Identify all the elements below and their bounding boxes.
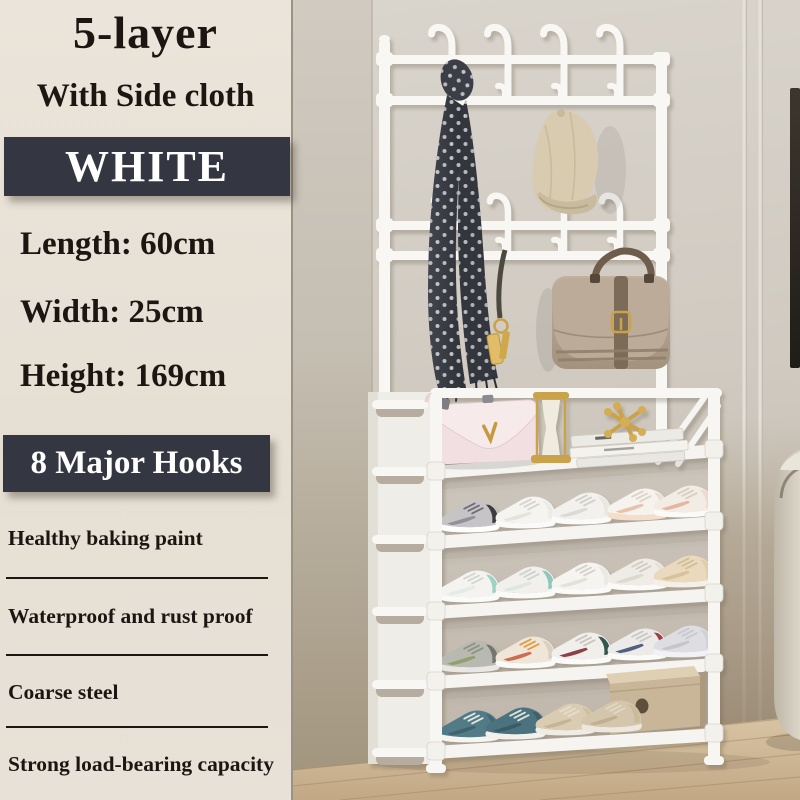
- spec-height: Height: 169cm: [20, 358, 226, 395]
- feature-load-bearing: Strong load-bearing capacity: [8, 752, 274, 777]
- product-title: 5-layer: [0, 6, 291, 59]
- divider: [6, 577, 268, 579]
- info-panel: 5-layer With Side cloth WHITE Length: 60…: [0, 0, 293, 800]
- color-banner: WHITE: [4, 137, 290, 196]
- product-image: 5-layer With Side cloth WHITE Length: 60…: [0, 0, 800, 800]
- feature-baking-paint: Healthy baking paint: [8, 526, 203, 551]
- feature-waterproof: Waterproof and rust proof: [8, 604, 253, 629]
- side-panel-column: [368, 392, 432, 765]
- rack-top-rail: [430, 388, 722, 398]
- divider: [6, 726, 268, 728]
- feature-coarse-steel: Coarse steel: [8, 680, 118, 705]
- divider: [6, 654, 268, 656]
- gold-hourglass: [531, 392, 571, 463]
- wardrobe-gap: [790, 88, 800, 368]
- product-subtitle: With Side cloth: [0, 78, 291, 115]
- pink-handbag: [426, 389, 546, 472]
- hooks-banner: 8 Major Hooks: [3, 435, 270, 492]
- spec-width: Width: 25cm: [20, 294, 204, 331]
- spec-length: Length: 60cm: [20, 226, 215, 263]
